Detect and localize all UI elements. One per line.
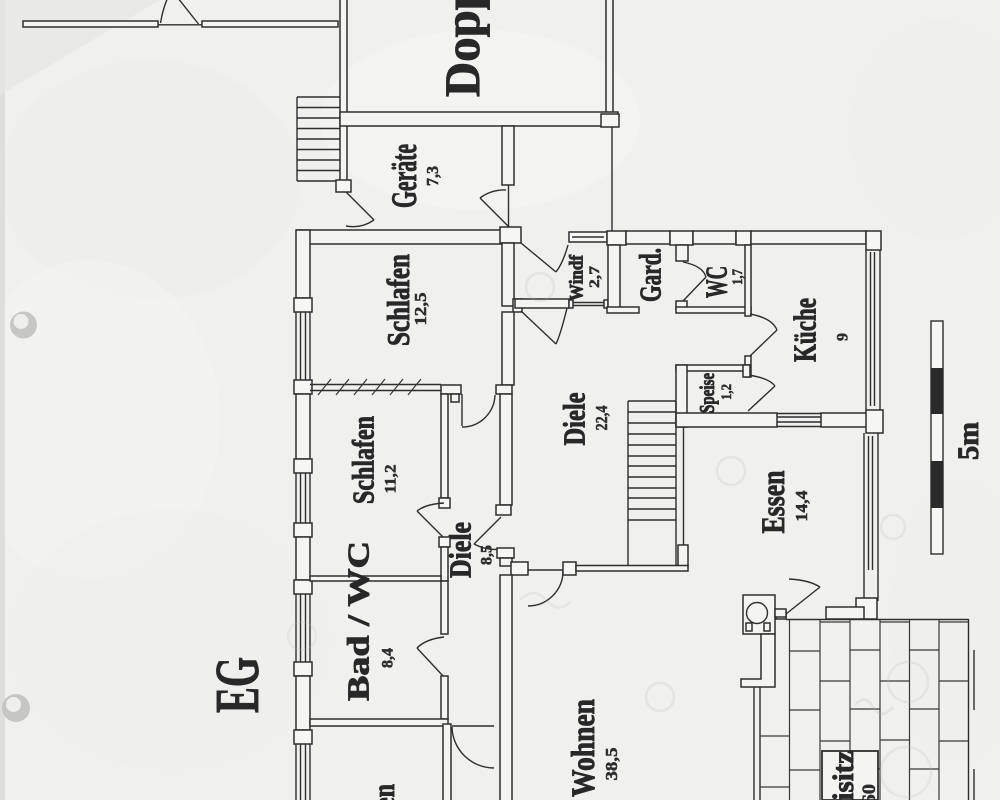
svg-text:8,4: 8,4 (379, 648, 396, 668)
svg-text:Diele: Diele (557, 393, 592, 446)
svg-text:22,4: 22,4 (592, 405, 611, 430)
svg-text:8,5: 8,5 (478, 545, 495, 565)
svg-text:Doppelgarage: Doppelgarage (434, 0, 490, 97)
svg-text:Gard.: Gard. (633, 248, 668, 302)
svg-text:Essen: Essen (756, 471, 792, 534)
svg-text:Wohnen: Wohnen (566, 699, 602, 797)
svg-text:Schlafen: Schlafen (346, 416, 381, 504)
svg-text:12,5: 12,5 (411, 293, 430, 326)
svg-text:Küche: Küche (787, 298, 823, 362)
svg-text:Windf: Windf (566, 254, 587, 301)
svg-text:Freisitz: Freisitz (827, 751, 860, 800)
svg-text:WC: WC (699, 266, 734, 298)
svg-text:21,60: 21,60 (859, 784, 880, 800)
svg-text:5m: 5m (952, 422, 985, 460)
svg-text:2,7: 2,7 (587, 265, 603, 288)
svg-text:1,7: 1,7 (730, 269, 746, 285)
svg-text:Schlafen: Schlafen (366, 784, 401, 800)
svg-text:Bad / WC: Bad / WC (341, 541, 376, 701)
svg-text:1,2: 1,2 (719, 384, 735, 400)
svg-text:Geräte: Geräte (384, 144, 424, 208)
svg-text:38,5: 38,5 (602, 748, 621, 781)
svg-text:Speise: Speise (695, 373, 719, 413)
svg-text:14,4: 14,4 (792, 490, 811, 522)
svg-text:7,3: 7,3 (423, 166, 442, 186)
svg-text:EG: EG (204, 657, 272, 713)
svg-text:11,2: 11,2 (382, 465, 399, 494)
svg-text:9: 9 (834, 333, 851, 341)
